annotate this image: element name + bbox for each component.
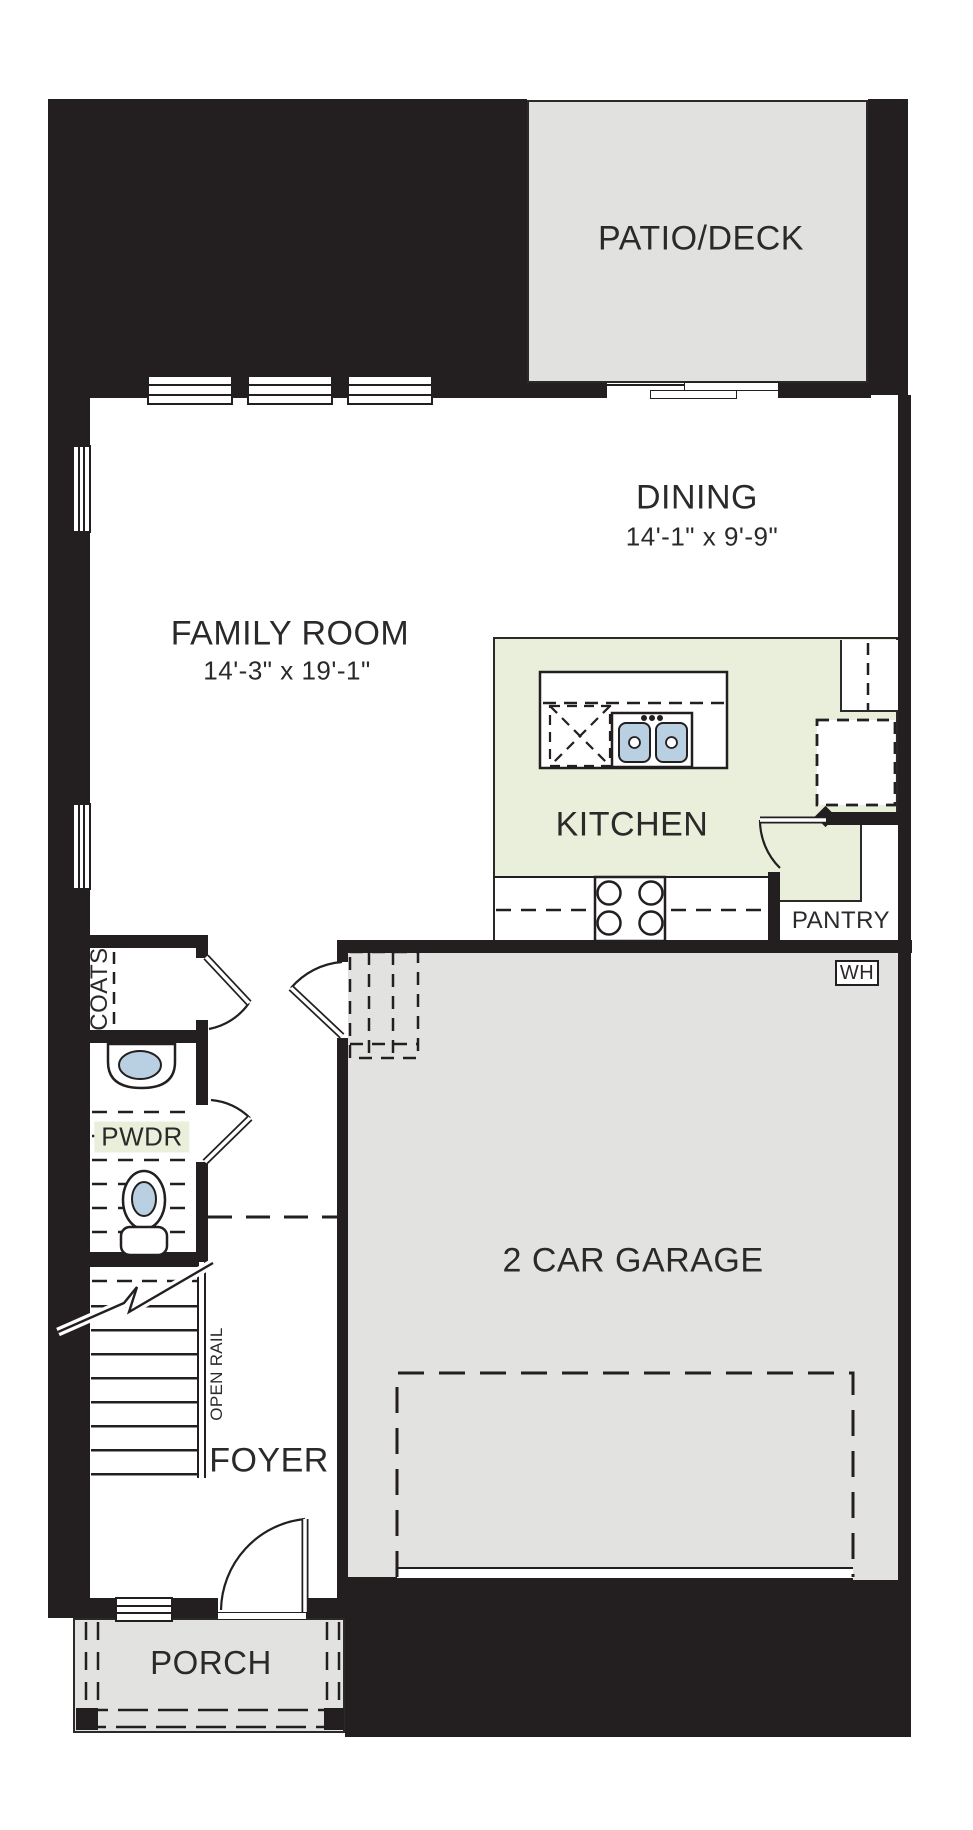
room-label-family: FAMILY ROOM [171,615,410,654]
pantry-stub-wall [826,812,908,825]
room-label-garage: 2 CAR GARAGE [502,1242,763,1281]
stair-treads [91,1305,198,1477]
powder-door-opening [196,1105,208,1162]
closet-door-arc [209,1003,249,1029]
front-exterior-band [345,1580,911,1737]
room-label-foyer: FOYER [209,1442,329,1481]
powder-door-arc [211,1100,250,1118]
toilet-icon [121,1171,167,1255]
exterior-black-block [48,99,527,383]
front-door-arc [221,1519,305,1610]
porch-post-right [324,1708,344,1730]
front-door-sill [218,1612,306,1620]
garage-left-wall-a [337,950,348,962]
closet-door-opening [196,958,208,1020]
garage-overhead-door [397,1567,853,1580]
slider-panel-inner [650,390,737,399]
floor-plan: PATIO/DECK DINING 14'-1" x 9'-9" FAMILY … [0,0,973,1830]
powder-sink-icon [108,1044,175,1088]
left-window-1 [72,445,91,533]
right-wall [898,395,911,1580]
pantry-left-wall [768,872,780,942]
kitchen-cabinet-column [840,640,898,712]
kitchen-counter [493,878,768,940]
closet-right-wall-a [196,948,208,958]
garage-left-wall-b [337,1038,348,1598]
room-label-dining: DINING [636,479,758,518]
foyer-window [115,1597,173,1622]
room-label-porch: PORCH [150,1644,272,1682]
left-window-2 [72,803,91,890]
stair-stringer [197,1262,206,1478]
right-exterior-band [868,99,908,395]
room-label-kitchen: KITCHEN [556,806,709,845]
water-heater-box: WH [835,960,879,986]
dims-family: 14'-3" x 19'-1" [203,656,370,687]
room-label-patio-deck: PATIO/DECK [598,220,804,259]
closet-top-wall [76,935,208,948]
family-window-3 [347,375,433,405]
garage-door-arc [291,962,342,988]
porch-post-left [76,1708,98,1730]
water-heater-label: WH [840,962,874,985]
garage-door-opening [337,962,348,1038]
powder-bottom-wall [76,1252,208,1267]
room-label-powder: PWDR [94,1122,189,1153]
open-rail-label: OPEN RAIL [207,1327,227,1420]
family-window-2 [247,375,333,405]
dims-dining: 14'-1" x 9'-9" [626,522,778,553]
kitchen-doorway-floor [780,825,862,902]
family-window-1 [147,375,233,405]
garage-top-wall [337,940,912,953]
room-label-pantry: PANTRY [792,907,890,935]
closet-bottom-wall [76,1030,208,1043]
room-label-coats: COATS [86,947,114,1030]
